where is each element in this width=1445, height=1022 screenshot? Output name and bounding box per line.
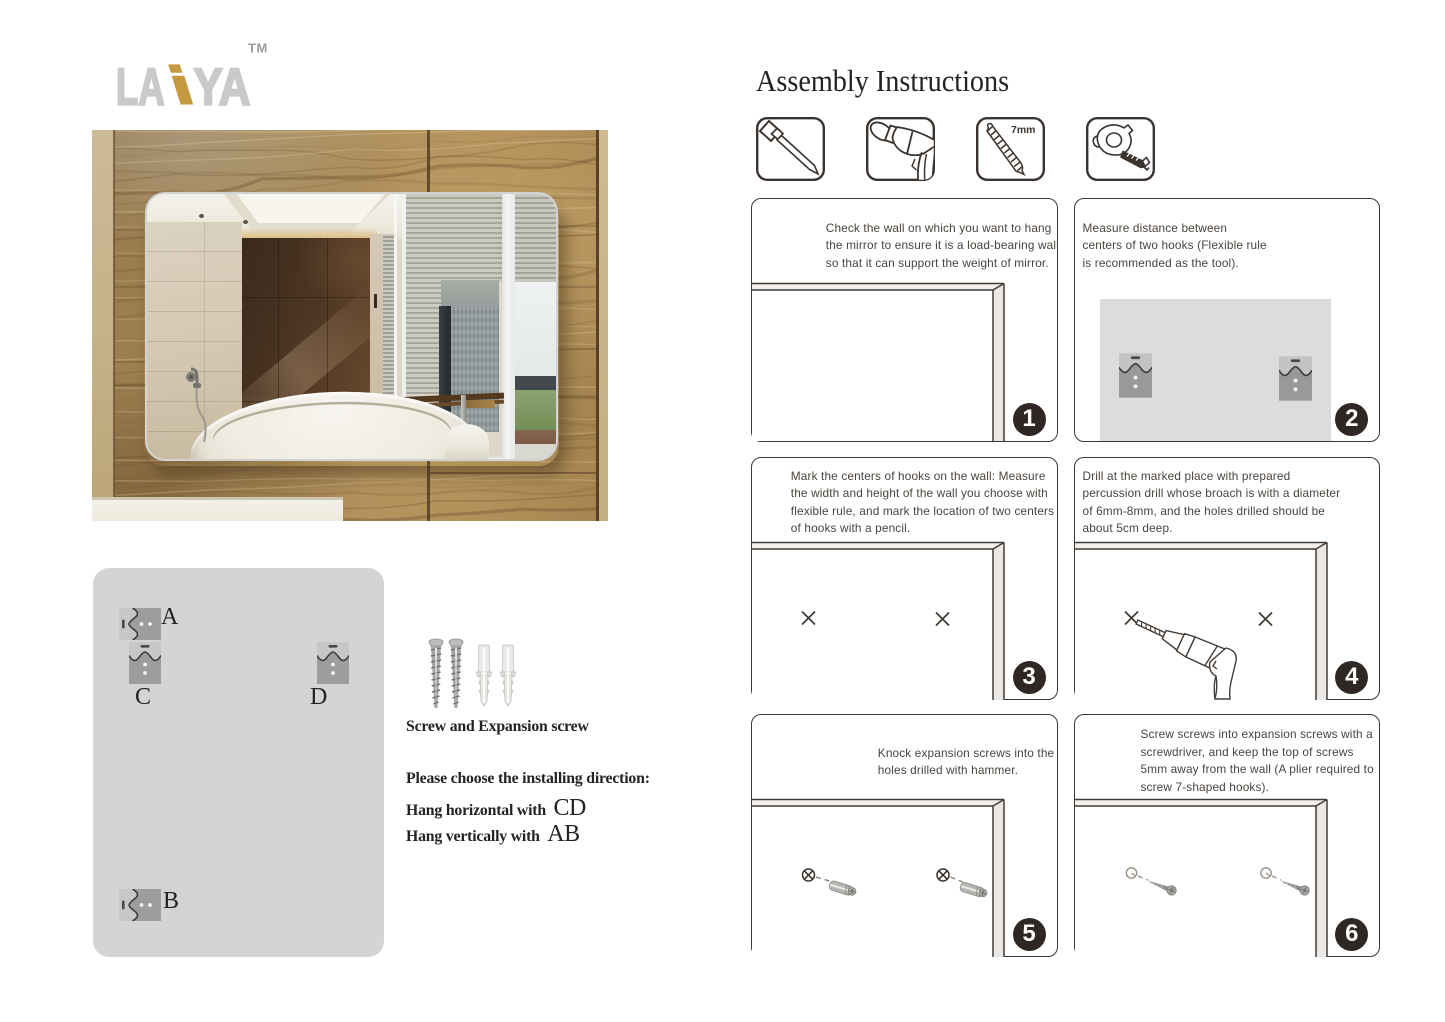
svg-text:LA: LA [116,57,165,107]
svg-text:YA: YA [194,58,251,107]
svg-text:TM: TM [248,41,268,56]
svg-text:7mm: 7mm [1011,124,1036,136]
